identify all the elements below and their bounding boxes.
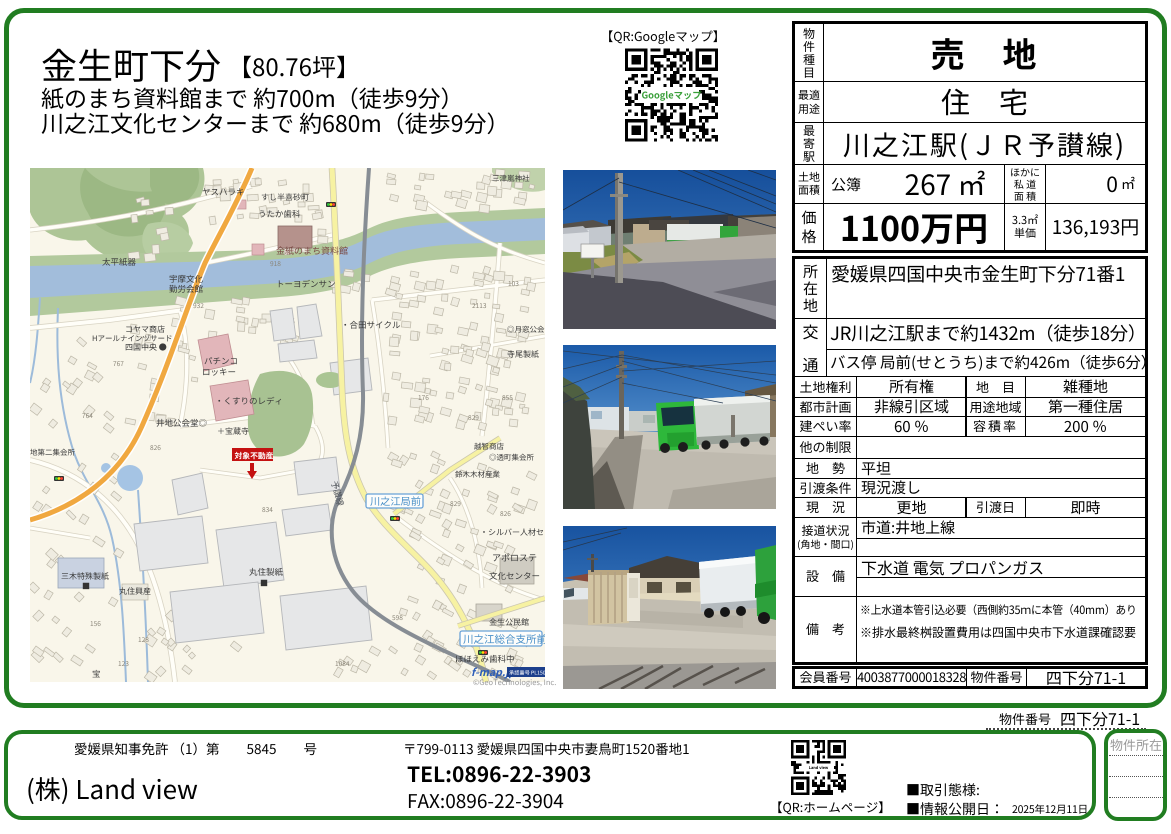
svg-text:金生公民館: 金生公民館	[489, 617, 529, 628]
svg-text:■: ■	[82, 581, 90, 592]
svg-text:156: 156	[90, 618, 101, 628]
svg-text:826: 826	[150, 442, 161, 452]
svg-text:826: 826	[500, 508, 511, 518]
svg-text:◎月窓公会: ◎月窓公会	[507, 324, 545, 335]
svg-text:対象不動産: 対象不動産	[235, 451, 274, 462]
svg-text:文化センター: 文化センター	[489, 570, 540, 582]
svg-text:アポロステ: アポロステ	[492, 551, 537, 564]
svg-text:四国中央 ●: 四国中央 ●	[125, 342, 167, 353]
svg-text:丸住製紙: 丸住製紙	[249, 566, 284, 578]
svg-text:・合田サイクル: ・合田サイクル	[341, 319, 401, 331]
svg-text:103: 103	[508, 278, 519, 288]
svg-text:◎透町集会所: ◎透町集会所	[489, 452, 534, 463]
svg-text:Land view: Land view	[809, 765, 829, 771]
svg-text:ロッキー: ロッキー	[202, 366, 236, 378]
svg-text:829: 829	[468, 412, 479, 422]
svg-text:トーヨデンサン: トーヨデンサン	[276, 278, 336, 290]
svg-text:川之江局前: 川之江局前	[370, 493, 421, 508]
svg-text:767: 767	[113, 358, 124, 368]
svg-text:太平紙器: 太平紙器	[102, 256, 137, 268]
svg-text:1084: 1084	[335, 658, 350, 668]
svg-text:764: 764	[82, 410, 93, 420]
svg-text:■: ■	[260, 578, 268, 589]
svg-text:鈴木木材産業: 鈴木木材産業	[455, 469, 500, 480]
svg-text:金紙のまち資料館: 金紙のまち資料館	[276, 244, 348, 257]
svg-text:川之江総合支所前: 川之江総合支所前	[463, 632, 545, 647]
svg-text:176: 176	[418, 392, 429, 402]
svg-text:井地公会堂◎: 井地公会堂◎	[156, 417, 208, 429]
svg-text:・シルバー人材セ: ・シルバー人材セ	[480, 527, 544, 538]
svg-text:＋宝蔵寺: ＋宝蔵寺	[217, 426, 249, 437]
svg-text:うたか歯科: うたか歯科	[258, 208, 301, 220]
svg-text:・くすりのレディ: ・くすりのレディ	[215, 395, 283, 407]
svg-text:829: 829	[450, 498, 461, 508]
svg-text:855: 855	[502, 392, 513, 402]
svg-text:寺尾製紙: 寺尾製紙	[507, 349, 539, 360]
svg-text:ほほえみ歯科中: ほほえみ歯科中	[455, 653, 515, 665]
svg-text:ヤスハラキ: ヤスハラキ	[202, 186, 245, 198]
svg-text:123: 123	[118, 658, 129, 668]
svg-text:834: 834	[262, 504, 273, 514]
svg-text:越智商店: 越智商店	[474, 441, 504, 452]
svg-text:承認番号 PL1504: 承認番号 PL1504	[509, 670, 545, 677]
svg-text:Googleマップ: Googleマップ	[641, 87, 702, 101]
svg-text:598: 598	[392, 612, 403, 622]
svg-text:128: 128	[138, 634, 149, 644]
svg-text:勤労会館: 勤労会館	[169, 283, 204, 295]
svg-text:918: 918	[270, 258, 281, 268]
svg-text:932: 932	[193, 300, 204, 310]
svg-text:丸住興産: 丸住興産	[119, 586, 151, 597]
svg-text:2113: 2113	[472, 300, 487, 310]
svg-text:地第二集会所: 地第二集会所	[30, 447, 75, 458]
svg-text:すし半喜砂町: すし半喜砂町	[261, 192, 309, 203]
svg-text:宝: 宝	[92, 668, 101, 680]
svg-text:三津嵐神社: 三津嵐神社	[492, 173, 530, 184]
